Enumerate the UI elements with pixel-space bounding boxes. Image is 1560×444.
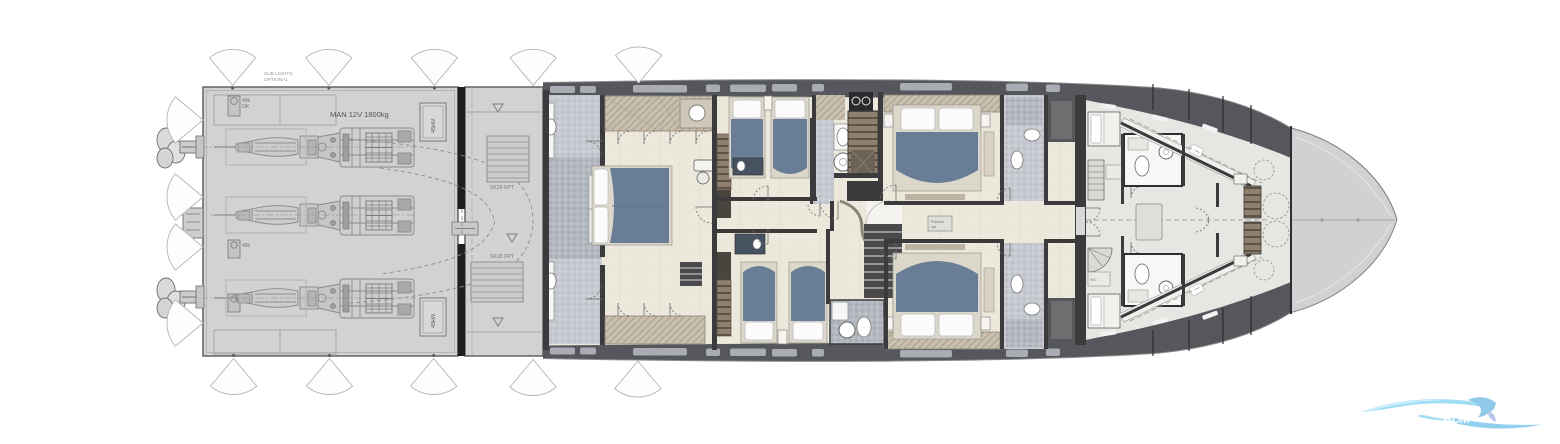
svg-text:SUB LIGHTS: SUB LIGHTS: [264, 71, 293, 77]
svg-text:MAN 12V 1800kg: MAN 12V 1800kg: [330, 110, 389, 119]
svg-text:SK18 OPT: SK18 OPT: [490, 254, 514, 260]
svg-text:40k: 40k: [242, 243, 251, 249]
svg-text:W/D: W/D: [1090, 278, 1097, 282]
svg-text:opt: opt: [931, 225, 936, 229]
svg-text:OPTIONAL: OPTIONAL: [264, 77, 289, 83]
svg-text:45kW: 45kW: [431, 118, 437, 133]
svg-text:Pullman: Pullman: [931, 220, 944, 224]
svg-text:.COM: .COM: [1439, 412, 1473, 426]
svg-text:SK18 OPT: SK18 OPT: [490, 185, 514, 191]
svg-text:OK: OK: [242, 104, 250, 110]
svg-text:45kW: 45kW: [431, 313, 437, 328]
